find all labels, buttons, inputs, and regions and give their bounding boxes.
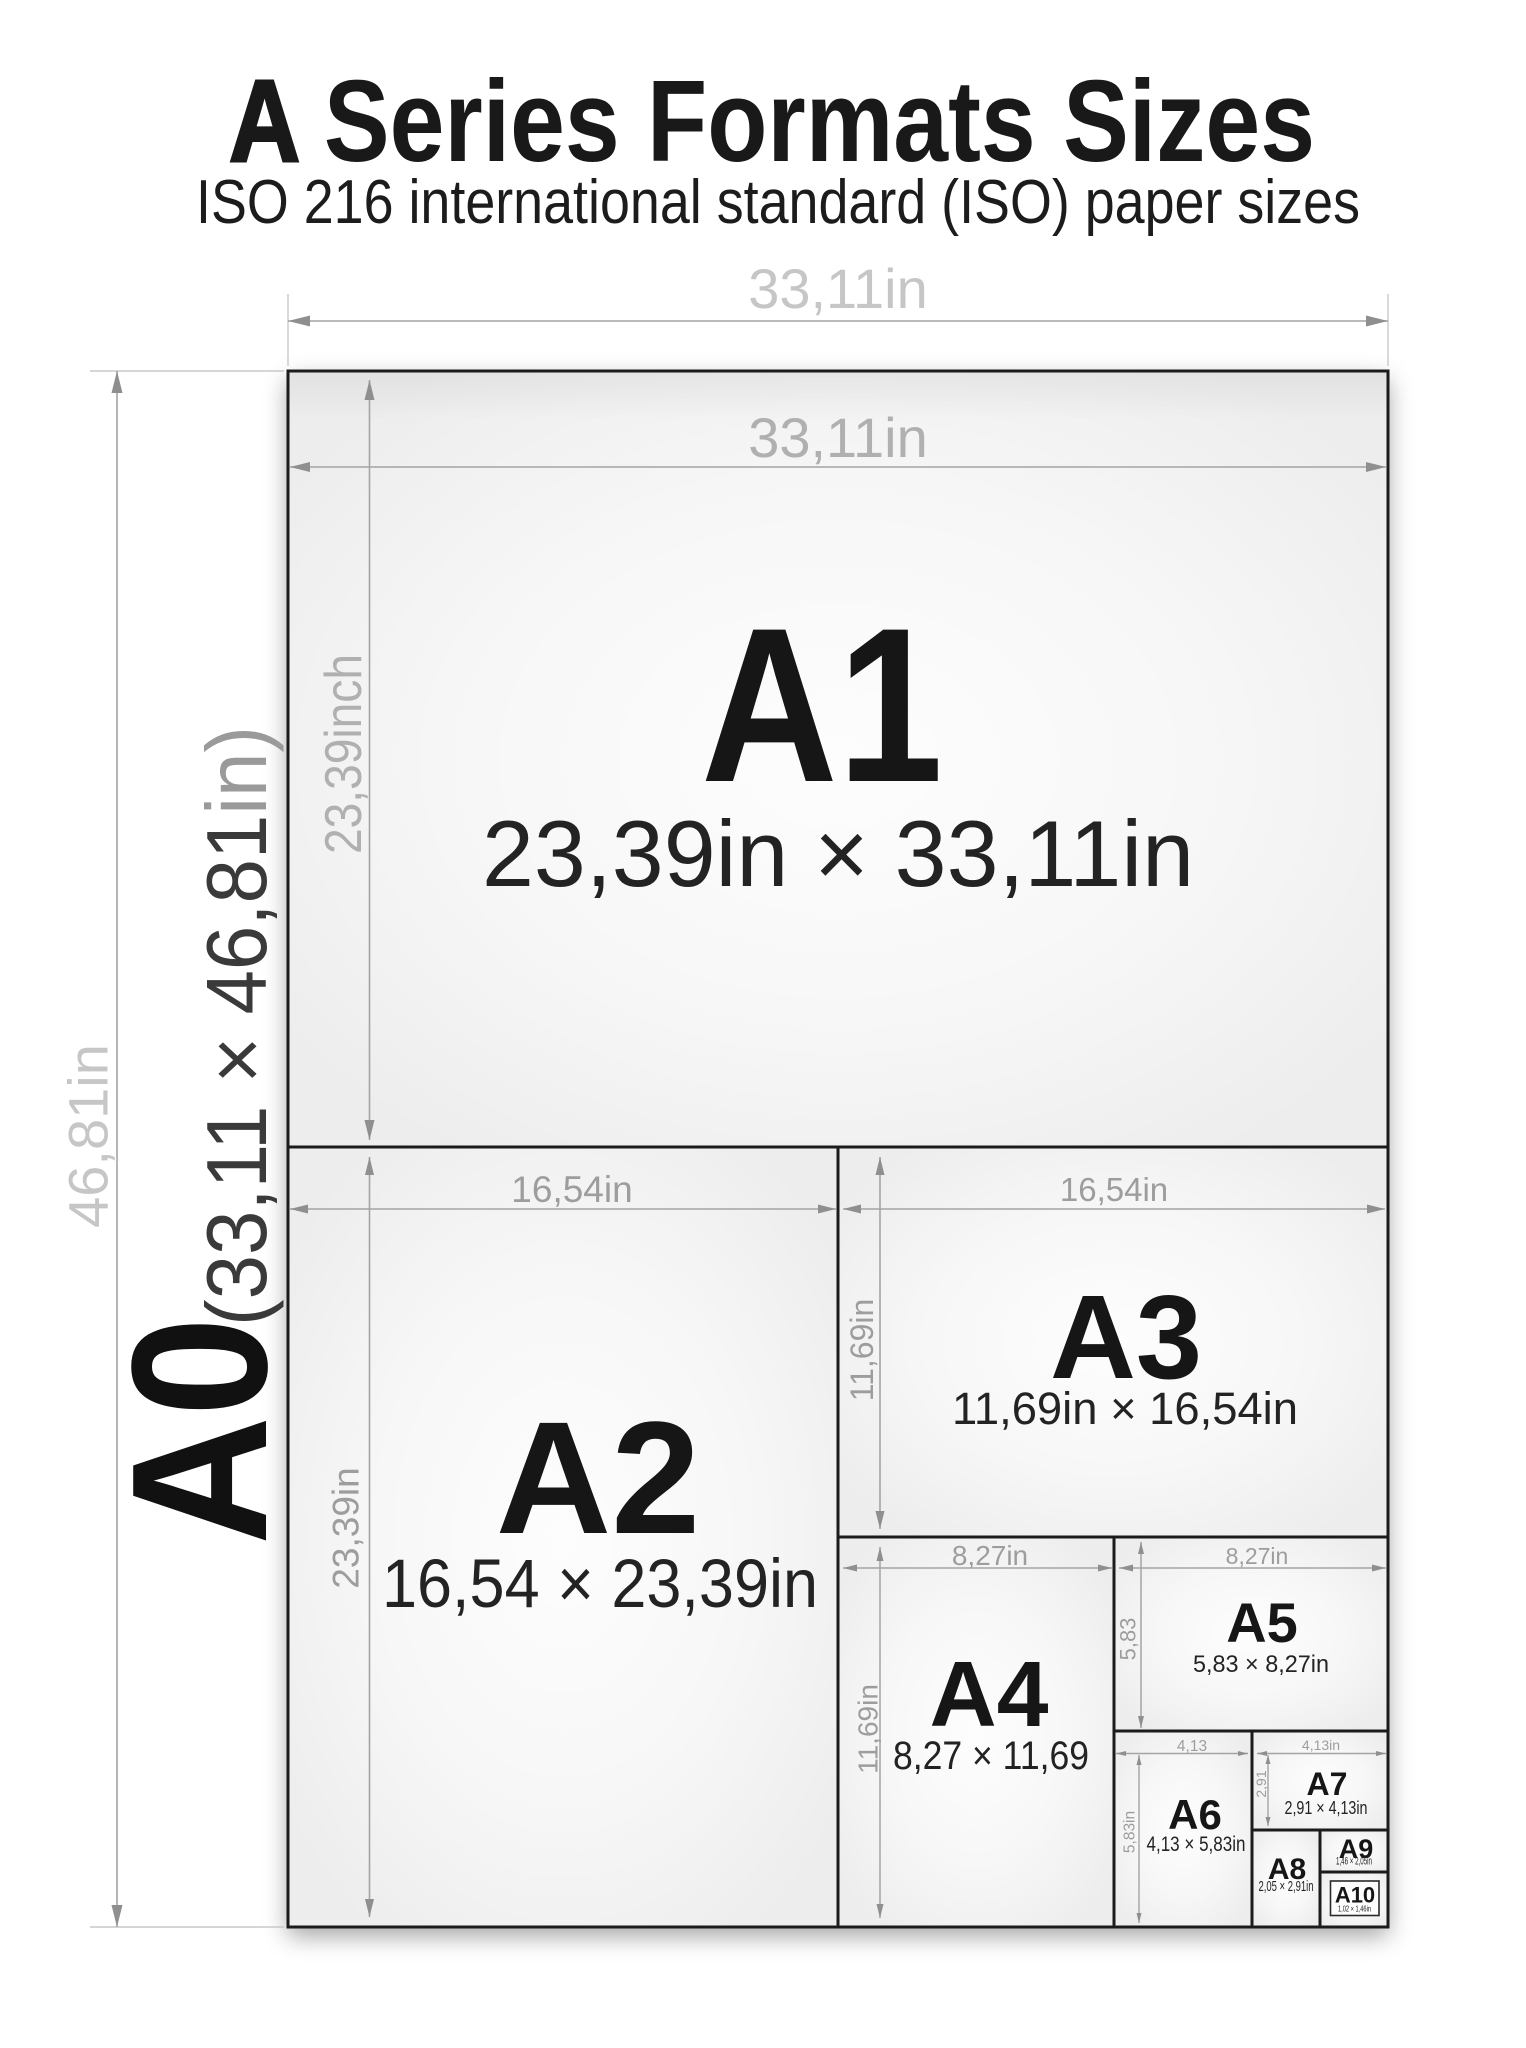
svg-text:1,46 × 2,05in: 1,46 × 2,05in bbox=[1336, 1856, 1372, 1868]
svg-text:A0: A0 bbox=[91, 1317, 307, 1545]
svg-text:A4: A4 bbox=[930, 1642, 1049, 1746]
svg-text:A6: A6 bbox=[1168, 1791, 1222, 1838]
svg-text:5,83 × 8,27in: 5,83 × 8,27in bbox=[1193, 1651, 1329, 1678]
svg-text:A5: A5 bbox=[1226, 1591, 1298, 1654]
svg-text:11,69in × 16,54in: 11,69in × 16,54in bbox=[952, 1383, 1298, 1434]
svg-text:2,05 × 2,91in: 2,05 × 2,91in bbox=[1259, 1879, 1314, 1895]
svg-text:5,83: 5,83 bbox=[1116, 1618, 1141, 1661]
svg-text:23,39in: 23,39in bbox=[326, 1467, 367, 1588]
svg-text:23,39in × 33,11in: 23,39in × 33,11in bbox=[482, 801, 1194, 906]
svg-text:33,11in: 33,11in bbox=[748, 406, 928, 469]
svg-text:16,54in: 16,54in bbox=[1060, 1171, 1168, 1208]
svg-text:8,27in: 8,27in bbox=[952, 1540, 1028, 1571]
svg-text:(33,11 × 46,81in): (33,11 × 46,81in) bbox=[190, 726, 285, 1326]
svg-text:1,02 × 1,46in: 1,02 × 1,46in bbox=[1338, 1905, 1371, 1914]
svg-text:A Series Formats Sizes: A Series Formats Sizes bbox=[229, 56, 1315, 186]
svg-text:A7: A7 bbox=[1307, 1766, 1348, 1802]
svg-text:2,91: 2,91 bbox=[1253, 1770, 1269, 1797]
svg-text:ISO 216 international standard: ISO 216 international standard (ISO) pap… bbox=[196, 168, 1360, 237]
svg-text:11,69in: 11,69in bbox=[853, 1684, 884, 1774]
svg-text:A2: A2 bbox=[496, 1388, 701, 1567]
svg-text:2,91 × 4,13in: 2,91 × 4,13in bbox=[1285, 1798, 1368, 1818]
svg-text:23,39inch: 23,39inch bbox=[315, 654, 373, 854]
svg-text:A1: A1 bbox=[701, 582, 943, 828]
svg-text:46,81in: 46,81in bbox=[57, 1044, 120, 1228]
svg-text:16,54 × 23,39in: 16,54 × 23,39in bbox=[382, 1545, 818, 1622]
svg-text:4,13: 4,13 bbox=[1177, 1738, 1207, 1755]
svg-text:5,83in: 5,83in bbox=[1122, 1811, 1139, 1853]
svg-text:33,11in: 33,11in bbox=[748, 257, 928, 320]
svg-text:4,13in: 4,13in bbox=[1302, 1737, 1340, 1753]
svg-text:11,69in: 11,69in bbox=[844, 1299, 880, 1402]
svg-text:4,13 × 5,83in: 4,13 × 5,83in bbox=[1147, 1833, 1246, 1856]
svg-text:16,54in: 16,54in bbox=[511, 1169, 632, 1210]
svg-text:8,27in: 8,27in bbox=[1226, 1543, 1289, 1569]
svg-text:8,27 × 11,69: 8,27 × 11,69 bbox=[893, 1734, 1089, 1778]
